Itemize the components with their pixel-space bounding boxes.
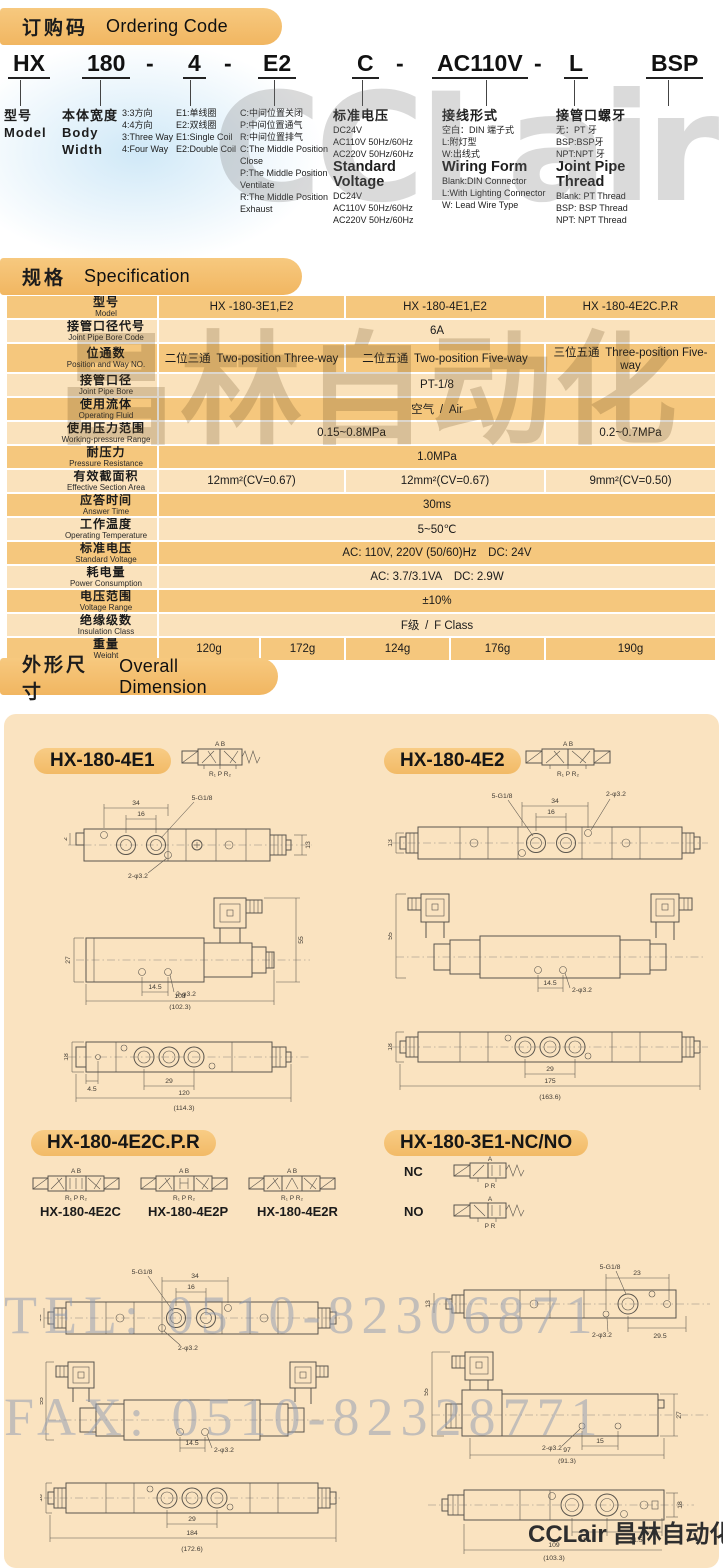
ordering-column-model: 型号 Model [4,107,60,141]
dim-label: 16 [187,1284,195,1291]
dim-label: 2-φ3.2 [128,873,148,880]
banner-title-en: Specification [84,266,190,287]
dim-label: 13 [388,839,394,847]
ordering-column-middle-position: C:中间位置关闭 P:中间位置通气 R:中间位置排气 C:The Middle … [240,107,332,215]
note-line: NPT: NPT Thread [556,214,676,226]
dim-label: 34 [132,800,140,807]
note-line: 接线形式 [442,107,554,124]
spec-cell: 190g [545,637,716,661]
banner-title-en: Ordering Code [106,16,228,37]
svg-text:A B: A B [179,1168,189,1175]
dim-label: 16 [137,811,145,818]
spec-cell: HX -180-4E2C.P.R [545,296,716,319]
dimension-banner: 外形尺寸 Overall Dimension [0,658,278,695]
note-line: 3:3方向 [122,107,174,119]
dim-label: (91.3) [558,1458,576,1464]
4e2-bottom-view-drawing: 18 29 175 (163.6) [388,1006,712,1106]
valve-symbol-4e2c: A B R₁ P R₂ [30,1166,122,1202]
svg-text:A: A [488,1156,493,1163]
dim-label: 18 [64,1053,70,1061]
note-line: AC110V 50Hz/60Hz [333,202,437,214]
table-row: 电压范围Voltage Range ±10% [7,589,716,613]
table-row: 接管口径代号Joint Pipe Bore Code 6A [7,319,716,343]
dim-label: 2-φ3.2 [592,1332,612,1339]
spec-row-label: 接管口径代号Joint Pipe Bore Code [7,319,158,343]
code-part-width: 180 [82,50,130,79]
dim-label: 184 [186,1530,198,1537]
note-line: 4:Four Way [122,143,174,155]
spec-cell: 二位三通 Two-position Three-way [158,343,345,373]
4e1-front-view-drawing: 27 55 14.5 2-φ3.2 108 (102.3) [64,884,316,1010]
note-line: E1:Single Coil [176,131,238,143]
svg-text:R₁ P R₂: R₁ P R₂ [557,771,579,778]
dim-label: 5-G1/8 [492,793,513,800]
3e1-top-view-drawing: 5-G1/8 23 13 29.5 2-φ3.2 [424,1260,716,1340]
ordering-column-way: 3:3方向 4:4方向 3:Three Way 4:Four Way [122,107,174,155]
table-row: 位通数Position and Way NO. 二位三通 Two-positio… [7,343,716,373]
note-line: P:The Middle Position Ventilate [240,167,332,191]
code-part-way: 4 [183,50,206,79]
dim-label: 23 [633,1270,641,1277]
dim-label: 5-G1/8 [600,1264,621,1271]
note-line: AC110V 50Hz/60Hz [333,136,437,148]
dim-label: 29 [188,1516,196,1523]
4e2cpr-front-view-drawing: 55 14.5 2-φ3.2 [40,1354,344,1454]
dim-label: 55 [424,1388,430,1396]
note-line: Blank: PT Thread [556,190,676,202]
dim-label: 29 [546,1066,554,1073]
spec-cell: HX -180-4E1,E2 [345,296,545,319]
ordering-column-coil: E1:单线圈 E2:双线圈 E1:Single Coil E2:Double C… [176,107,238,155]
spec-cell: 空气 / Air [158,397,716,421]
note-line: Joint Pipe Thread [556,160,676,190]
dim-label: 13 [305,841,312,849]
note-line: BSP:BSP牙 [556,136,676,148]
dim-label: 2 [64,837,69,841]
valve-symbol-3e1-nc: A P R [446,1154,534,1190]
svg-text:R₁ P R₂: R₁ P R₂ [65,1195,87,1202]
code-part-model: HX [8,50,50,79]
svg-text:R₁ P R₂: R₁ P R₂ [281,1195,303,1202]
ordering-column-voltage: 标准电压 DC24V AC110V 50Hz/60Hz AC220V 50Hz/… [333,107,437,226]
dim-label: (114.3) [173,1105,194,1112]
note-line: C:中间位置关闭 [240,107,332,119]
dim-label: 5-G1/8 [132,1269,153,1276]
code-part-coil: E2 [258,50,296,79]
spec-cell: HX -180-3E1,E2 [158,296,345,319]
dim-label: 2-φ3.2 [606,791,626,798]
leader-line [274,80,275,106]
note-line: AC220V 50Hz/60Hz [333,214,437,226]
dim-label: (102.3) [169,1004,191,1010]
dim-label: 55 [40,1397,45,1405]
dim-label: (172.6) [181,1546,203,1553]
code-separator: - [224,50,232,77]
spec-cell: 9mm²(CV=0.50) [545,469,716,493]
spec-cell: 12mm²(CV=0.67) [158,469,345,493]
note-line: W: Lead Wire Type [442,199,554,211]
note-line: R:The Middle Position Exhaust [240,191,332,215]
dim-label: 16 [547,809,555,816]
spec-row-label: 使用压力范围Working-pressure Range [7,421,158,445]
valve-symbol-5-2-double: A B R₁ P R₂ [518,738,622,778]
4e2-front-view-drawing: 55 14.5 2-φ3.2 [388,882,712,1000]
dim-label: 120 [178,1090,190,1097]
dim-label: 14.5 [148,984,161,991]
svg-text:A B: A B [287,1168,297,1175]
4e1-bottom-view-drawing: 18 4.5 29 120 (114.3) [64,1014,316,1114]
code-separator: - [396,50,404,77]
dim-label: 18 [677,1501,684,1509]
model-pill-4e2cpr: HX-180-4E2C.P.R [31,1130,216,1156]
spec-row-label: 耗电量Power Consumption [7,565,158,589]
valve-symbol-4e2p: A B R₁ P R₂ [138,1166,230,1202]
note-line: E1:单线圈 [176,107,238,119]
note-line: L:With Lighting Connector [442,187,554,199]
table-row: 标准电压Standard Voltage AC: 110V, 220V (50/… [7,541,716,565]
ordering-column-width: 本体宽度 Body Width [62,107,122,158]
dim-label: 34 [551,798,559,805]
no-label: NO [404,1204,424,1219]
banner-title-en: Overall Dimension [119,656,256,698]
leader-line [574,80,575,106]
spec-row-label: 绝缘级数Insulation Class [7,613,158,637]
spec-cell: 5~50℃ [158,517,716,541]
banner-title-cn: 规格 [22,263,66,290]
spec-cell: 12mm²(CV=0.67) [345,469,545,493]
spec-cell: 124g [345,637,450,661]
dim-label: 4.5 [87,1086,97,1093]
spec-cell: 176g [450,637,545,661]
valve-symbol-3e1-no: A P R [446,1194,534,1230]
table-row: 接管口径Joint Pipe Bore PT-1/8 [7,373,716,397]
dim-label: 18 [40,1494,44,1502]
code-separator: - [146,50,154,77]
dim-label: 2-φ3.2 [572,987,592,994]
dim-label: 2-φ3.2 [542,1445,562,1452]
spec-cell: 172g [260,637,345,661]
table-row: 应答时间Answer Time 30ms [7,493,716,517]
table-row: 有效截面积Effective Section Area 12mm²(CV=0.6… [7,469,716,493]
dim-label: 55 [388,932,394,940]
note-line: DC24V [333,190,437,202]
svg-text:P R: P R [485,1183,496,1190]
ordering-column-wiring: 接线形式 空白：DIN 端子式 L:附灯型 W:出线式 Wiring Form … [442,107,554,211]
note-line: Standard Voltage [333,160,437,190]
table-row: 使用压力范围Working-pressure Range 0.15~0.8MPa… [7,421,716,445]
table-row: 工作温度Operating Temperature 5~50℃ [7,517,716,541]
spec-cell: 0.2~0.7MPa [545,421,716,445]
table-row: 型号Model HX -180-3E1,E2 HX -180-4E1,E2 HX… [7,296,716,319]
note-line: Body Width [62,124,122,158]
note-line: 无：PT 牙 [556,124,676,136]
table-row: 耐压力Pressure Resistance 1.0MPa [7,445,716,469]
note-line: 接管口螺牙 [556,107,676,124]
variant-label-4e2p: HX-180-4E2P [148,1204,228,1219]
spec-cell: PT-1/8 [158,373,716,397]
dim-label: 14.5 [185,1440,198,1447]
note-line: E2:Double Coil [176,143,238,155]
note-line: L:附灯型 [442,136,554,148]
3e1-front-view-drawing: 55 27 2-φ3.2 15 97 (91.3) [424,1342,716,1464]
spec-cell: AC: 3.7/3.1VA DC: 2.9W [158,565,716,589]
leader-line [20,80,21,106]
spec-row-label: 应答时间Answer Time [7,493,158,517]
leader-line [486,80,487,106]
4e1-top-view-drawing: 34 16 5-G1/8 2-φ3.2 13 2 [64,788,316,880]
dim-label: 2-φ3.2 [214,1447,234,1454]
spec-row-label: 耐压力Pressure Resistance [7,445,158,469]
table-row: 使用流体Operating Fluid 空气 / Air [7,397,716,421]
spec-row-label: 型号Model [7,296,158,319]
dim-label: 5-G1/8 [192,795,213,802]
model-pill-4e1: HX-180-4E1 [34,748,171,774]
svg-text:A B: A B [215,741,225,748]
dim-label: 13 [40,1314,43,1322]
note-line: Blank:DIN Connector [442,175,554,187]
spec-cell: 三位五通 Three-position Five-way [545,343,716,373]
dim-label: 2-φ3.2 [178,1345,198,1352]
spec-cell: 6A [158,319,716,343]
spec-cell: ±10% [158,589,716,613]
dim-label: 14.5 [543,980,556,987]
dim-label: 29 [165,1078,173,1085]
note-line: Wiring Form [442,160,554,175]
banner-title-cn: 订购码 [22,13,88,40]
spec-row-label: 接管口径Joint Pipe Bore [7,373,158,397]
spec-row-label: 使用流体Operating Fluid [7,397,158,421]
note-line: 空白：DIN 端子式 [442,124,554,136]
svg-text:A B: A B [563,741,573,748]
banner-title-cn: 外形尺寸 [22,650,101,704]
4e2cpr-top-view-drawing: 34 16 5-G1/8 2-φ3.2 13 [40,1264,344,1352]
note-line: BSP: BSP Thread [556,202,676,214]
dim-label: 55 [298,936,305,944]
table-row: 绝缘级数Insulation Class F级 / F Class [7,613,716,637]
dim-label: 13 [425,1300,432,1308]
leader-line [100,80,101,106]
leader-line [668,80,669,106]
dim-label: 15 [596,1438,604,1445]
dim-label: 34 [191,1273,199,1280]
ordering-column-thread: 接管口螺牙 无：PT 牙 BSP:BSP牙 NPT:NPT 牙 Joint Pi… [556,107,676,226]
spec-table: 型号Model HX -180-3E1,E2 HX -180-4E1,E2 HX… [7,296,717,662]
dim-label: 97 [563,1447,571,1454]
note-line: 型号 [4,107,60,124]
code-part-thread: BSP [646,50,703,79]
spec-cell: F级 / F Class [158,613,716,637]
note-line: R:中间位置排气 [240,131,332,143]
dim-label: 29.5 [653,1333,666,1340]
svg-text:R₁ P R₂: R₁ P R₂ [209,771,231,778]
ordering-code-banner: 订购码 Ordering Code [0,8,282,45]
note-line: Model [4,124,60,141]
spec-cell: 0.15~0.8MPa [158,421,545,445]
dim-label: (163.6) [539,1094,561,1101]
code-part-wiring: L [564,50,588,79]
specification-banner: 规格 Specification [0,258,302,295]
model-pill-4e2: HX-180-4E2 [384,748,521,774]
spec-cell: 1.0MPa [158,445,716,469]
code-part-middle: C [352,50,379,79]
dim-label: 108 [174,993,186,1000]
spec-row-label: 工作温度Operating Temperature [7,517,158,541]
valve-symbol-5-2-single: A B R₁ P R₂ [172,738,276,778]
dim-label: 27 [676,1411,683,1419]
dim-label: 175 [544,1078,556,1085]
spec-row-label: 有效截面积Effective Section Area [7,469,158,493]
variant-label-4e2c: HX-180-4E2C [40,1204,121,1219]
leader-line [362,80,363,106]
svg-text:R₁ P R₂: R₁ P R₂ [173,1195,195,1202]
variant-label-4e2r: HX-180-4E2R [257,1204,338,1219]
note-line: 本体宽度 [62,107,122,124]
brand-footer: CCLair 昌林自动化 [528,1514,723,1549]
spec-cell: AC: 110V, 220V (50/60)Hz DC: 24V [158,541,716,565]
spec-row-label: 标准电压Standard Voltage [7,541,158,565]
note-line: C:The Middle Position Close [240,143,332,167]
svg-text:P R: P R [485,1223,496,1230]
note-line: E2:双线圈 [176,119,238,131]
dim-label: 27 [65,956,72,964]
valve-symbol-4e2r: A B R₁ P R₂ [246,1166,338,1202]
svg-text:A: A [488,1196,493,1203]
table-row: 耗电量Power Consumption AC: 3.7/3.1VA DC: 2… [7,565,716,589]
4e2cpr-bottom-view-drawing: 18 29 184 (172.6) [40,1458,344,1562]
leader-line [190,80,191,106]
note-line: P:中间位置通气 [240,119,332,131]
dim-label: (103.3) [543,1555,565,1562]
svg-text:A B: A B [71,1168,81,1175]
dim-label: 18 [388,1043,394,1051]
nc-label: NC [404,1164,423,1179]
spec-row-label: 电压范围Voltage Range [7,589,158,613]
spec-cell: 30ms [158,493,716,517]
note-line: 3:Three Way [122,131,174,143]
datasheet-page: CCLair 昌林自动化 TEL: 0510-82306871 FAX: 051… [0,0,723,1568]
model-pill-3e1ncno: HX-180-3E1-NC/NO [384,1130,588,1156]
note-line: 4:4方向 [122,119,174,131]
4e2-top-view-drawing: 34 16 5-G1/8 2-φ3.2 13 [388,786,712,878]
spec-row-label: 位通数Position and Way NO. [7,343,158,373]
note-line: DC24V [333,124,437,136]
code-part-voltage: AC110V [432,50,528,79]
spec-cell: 二位五通 Two-position Five-way [345,343,545,373]
note-line: 标准电压 [333,107,437,124]
code-separator: - [534,50,542,77]
